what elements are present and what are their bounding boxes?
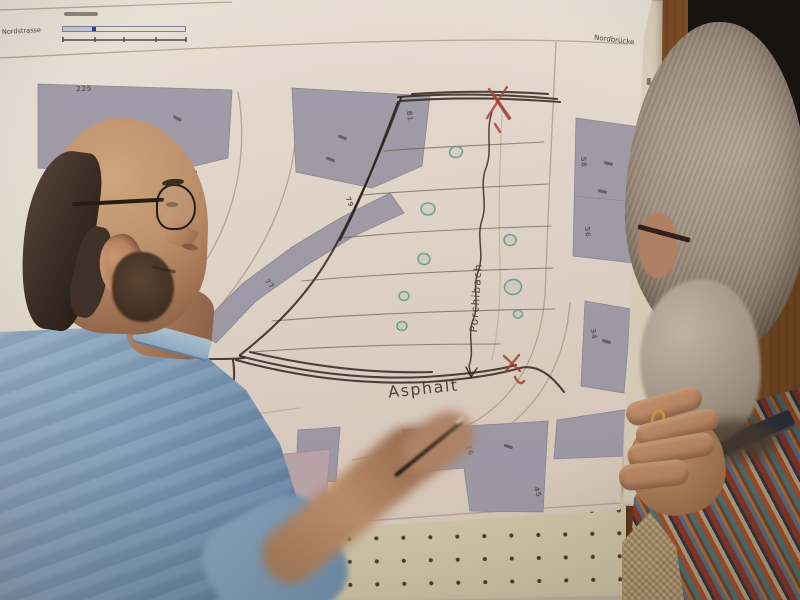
red-x-marks: [487, 87, 524, 383]
man2-cheek: [638, 212, 678, 278]
building-number: 81: [405, 110, 414, 122]
stream-pen-line: [466, 112, 492, 377]
building-number: 225: [76, 85, 92, 94]
man2-hand: [605, 392, 745, 527]
scale-bar-baseline: [62, 39, 186, 41]
scale-bar-segments: [62, 26, 186, 32]
man1-eye: [166, 202, 178, 207]
scale-bar-caption: [64, 12, 98, 16]
building-number: 34: [589, 328, 599, 340]
building-number: 58: [579, 156, 588, 167]
scale-bar: [58, 10, 192, 46]
tree-circles: [397, 145, 523, 330]
building-number: 56: [583, 226, 592, 237]
photo-scene: Nordstrasse Nordbrücke 225 81 79 77 75 5…: [0, 0, 800, 600]
man1-glasses-rim: [156, 184, 196, 230]
